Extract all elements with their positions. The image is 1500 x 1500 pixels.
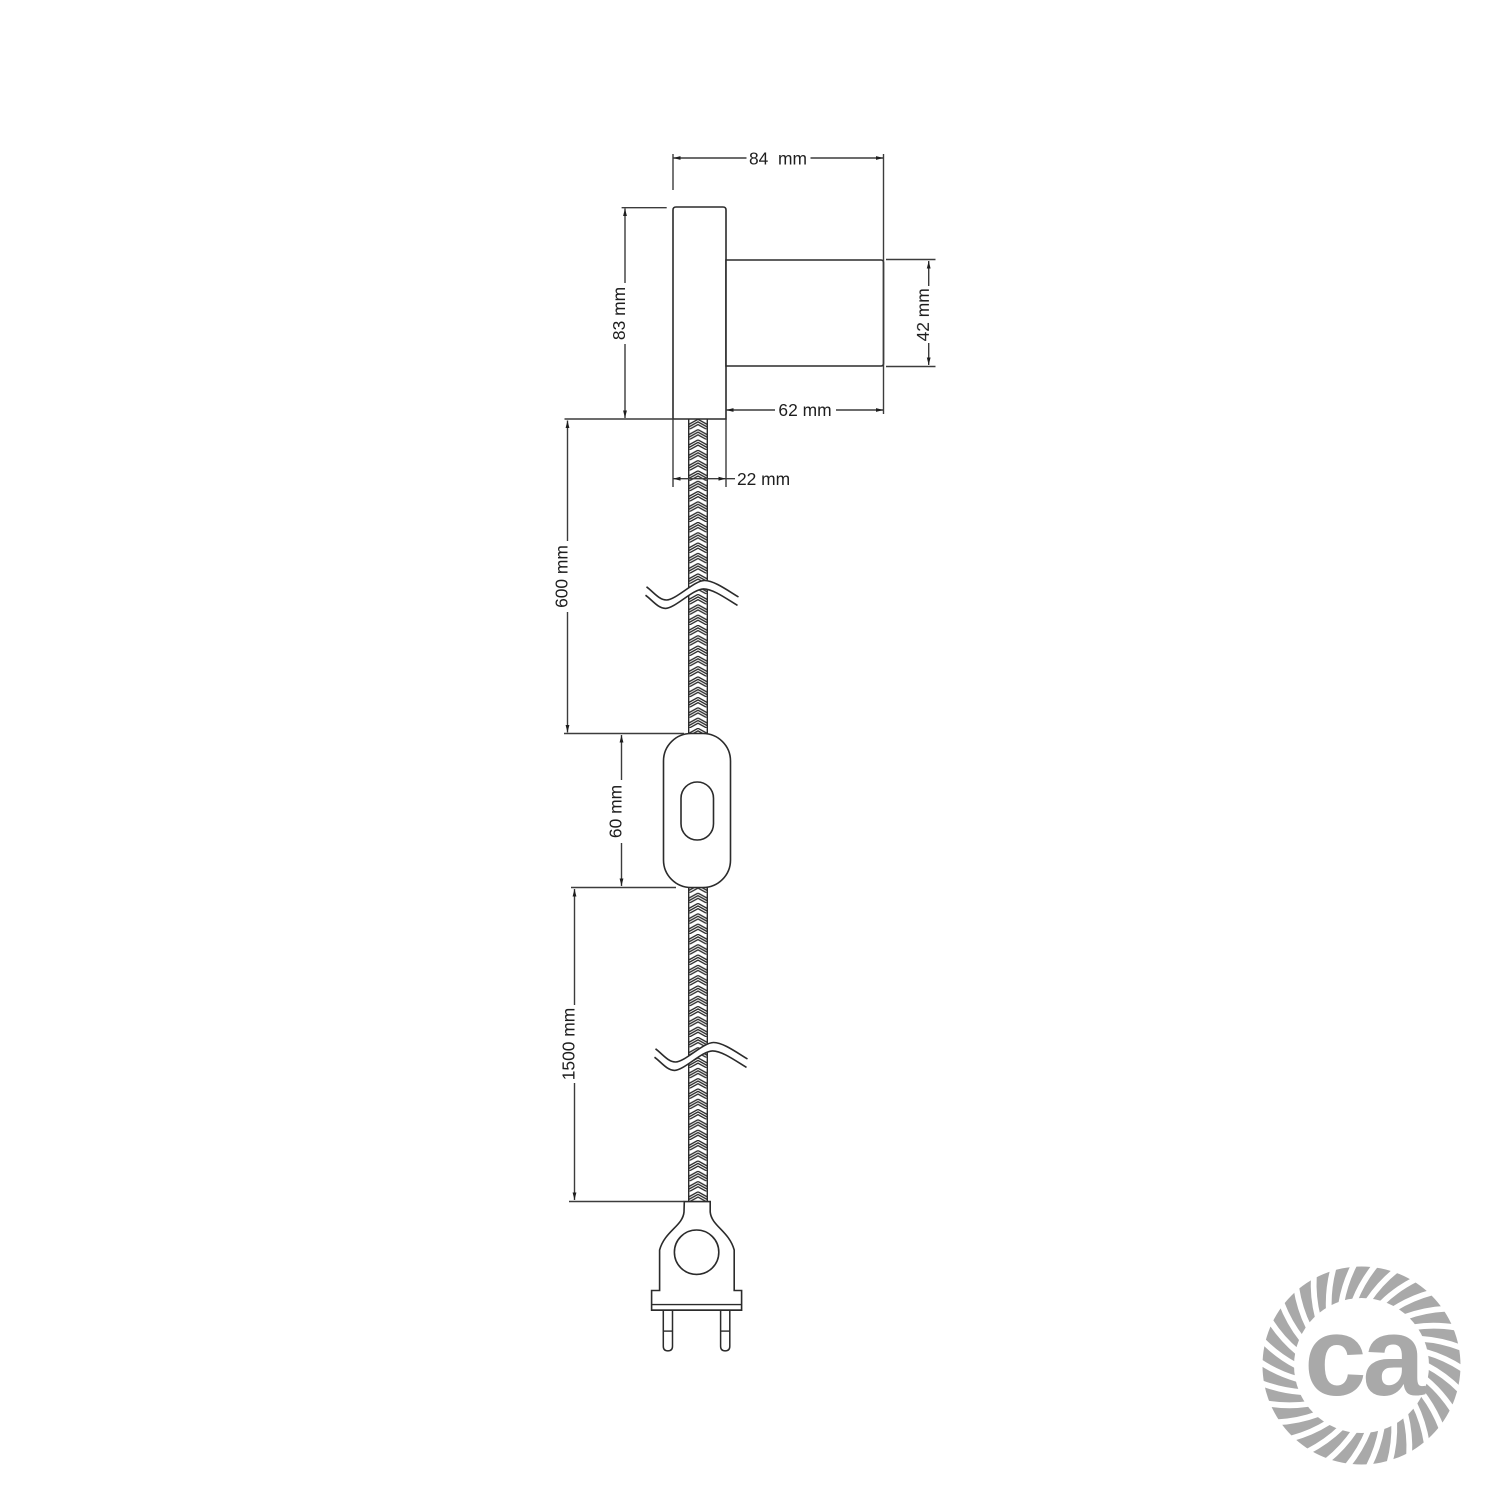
svg-text:62 mm: 62 mm — [778, 400, 831, 420]
svg-text:84 mm: 84 mm — [749, 148, 807, 168]
svg-text:1500 mm: 1500 mm — [559, 1008, 579, 1081]
svg-text:600 mm: 600 mm — [552, 545, 572, 608]
svg-text:22 mm: 22 mm — [737, 469, 790, 489]
svg-text:83 mm: 83 mm — [609, 287, 629, 340]
svg-text:42 mm: 42 mm — [913, 288, 933, 341]
svg-text:ca: ca — [1304, 1294, 1425, 1419]
svg-text:60 mm: 60 mm — [606, 785, 626, 838]
